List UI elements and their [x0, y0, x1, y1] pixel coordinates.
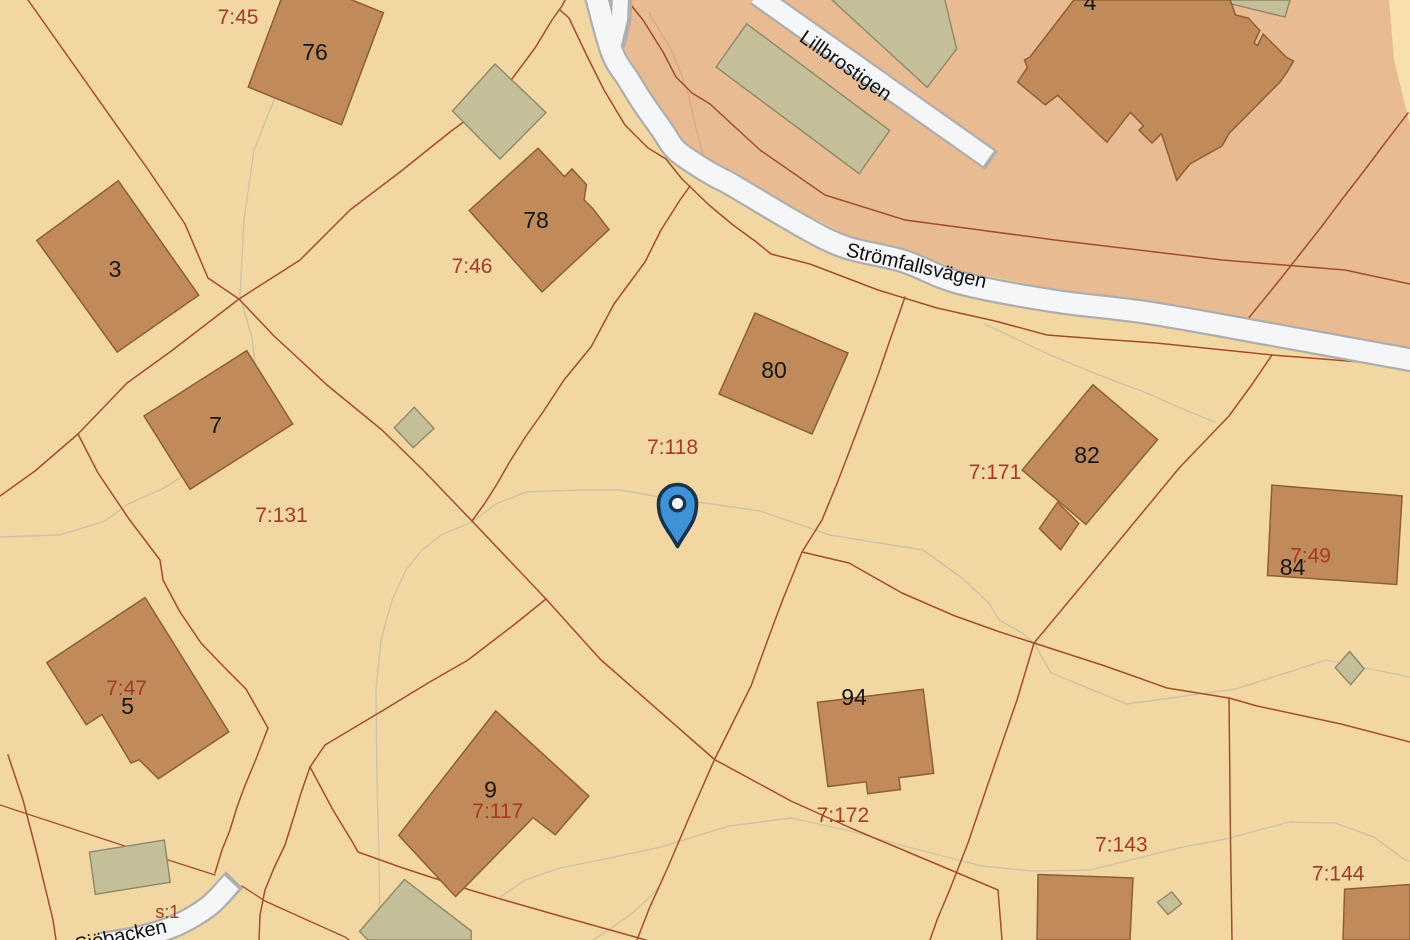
- svg-text:7:46: 7:46: [452, 255, 493, 278]
- svg-text:7:172: 7:172: [817, 804, 870, 827]
- svg-text:82: 82: [1074, 442, 1100, 468]
- svg-text:7:171: 7:171: [969, 461, 1022, 484]
- svg-text:94: 94: [841, 684, 867, 710]
- svg-text:7:143: 7:143: [1095, 833, 1148, 856]
- svg-text:7:117: 7:117: [472, 800, 523, 823]
- svg-text:7:45: 7:45: [218, 6, 259, 29]
- svg-text:s:1: s:1: [155, 902, 179, 922]
- svg-text:78: 78: [523, 207, 549, 233]
- svg-text:7:131: 7:131: [255, 504, 308, 527]
- svg-text:7:144: 7:144: [1312, 863, 1365, 886]
- svg-text:3: 3: [109, 256, 122, 282]
- svg-text:7: 7: [209, 412, 222, 438]
- svg-text:80: 80: [761, 357, 787, 383]
- svg-text:76: 76: [302, 39, 328, 65]
- svg-text:7:47: 7:47: [106, 677, 147, 700]
- svg-text:7:49: 7:49: [1290, 545, 1331, 568]
- svg-text:4: 4: [1084, 0, 1097, 15]
- svg-text:9: 9: [484, 777, 497, 803]
- svg-text:7:118: 7:118: [647, 436, 698, 459]
